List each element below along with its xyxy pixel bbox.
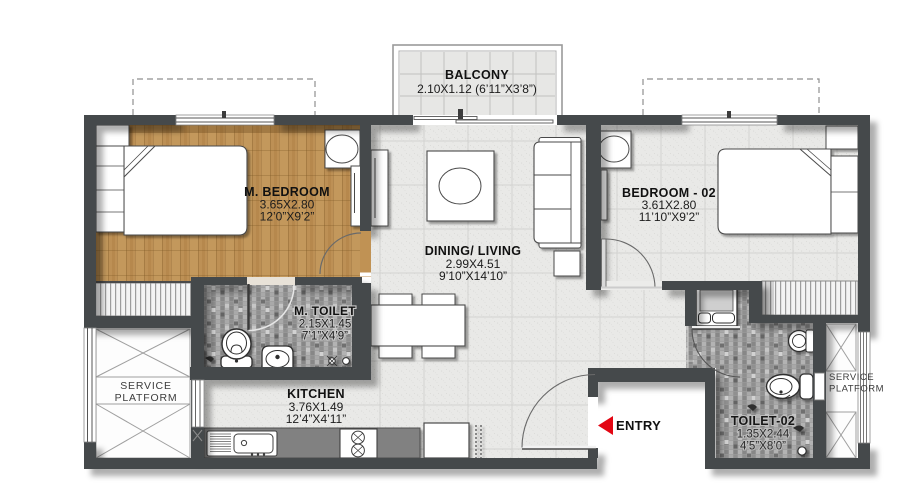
svg-text:2.15X1.45: 2.15X1.45 — [299, 319, 351, 331]
svg-text:BALCONY: BALCONY — [445, 68, 509, 82]
svg-text:4’5”X8’0”: 4’5”X8’0” — [740, 441, 786, 453]
svg-text:DINING/ LIVING: DINING/ LIVING — [425, 244, 522, 258]
svg-text:SERVICE: SERVICE — [120, 380, 172, 392]
svg-text:7’1”X4’9”: 7’1”X4’9” — [302, 331, 348, 343]
svg-text:12’4”X4’11”: 12’4”X4’11” — [286, 412, 346, 426]
svg-text:ENTRY: ENTRY — [616, 418, 661, 433]
svg-text:2.10X1.12 (6’11”X3’8”): 2.10X1.12 (6’11”X3’8”) — [417, 82, 537, 96]
svg-text:12’0”X9’2”: 12’0”X9’2” — [260, 210, 315, 224]
svg-text:9’10”X14’10”: 9’10”X14’10” — [439, 269, 507, 283]
svg-text:11’10”X9’2”: 11’10”X9’2” — [639, 210, 699, 224]
svg-text:PLATFORM: PLATFORM — [115, 392, 178, 404]
svg-text:M. TOILET: M. TOILET — [294, 304, 356, 318]
svg-text:1.35X2.44: 1.35X2.44 — [737, 429, 790, 441]
svg-text:TOILET-02: TOILET-02 — [731, 414, 795, 428]
svg-text:SERVICE: SERVICE — [829, 372, 874, 383]
svg-text:KITCHEN: KITCHEN — [287, 387, 345, 401]
svg-text:PLATFORM: PLATFORM — [829, 384, 884, 395]
